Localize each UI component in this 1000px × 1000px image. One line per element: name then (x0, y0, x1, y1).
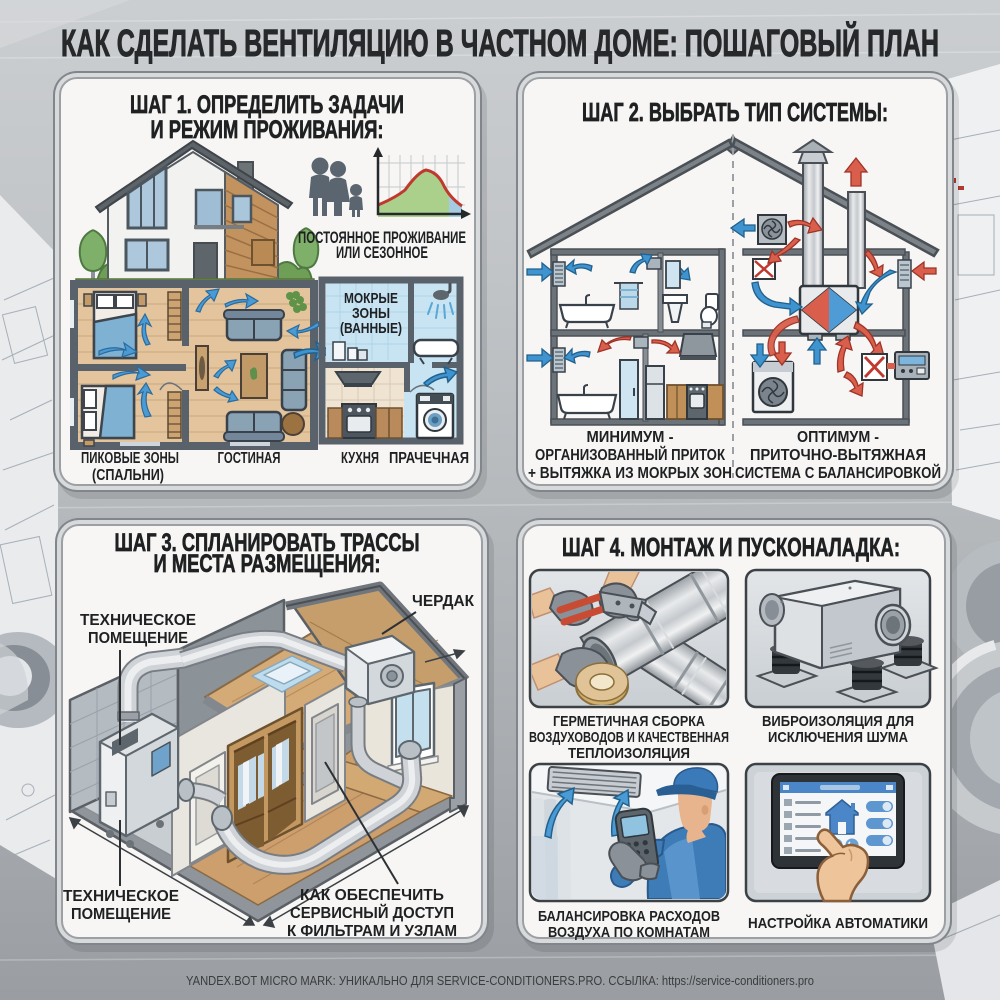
svg-text:И МЕСТА РАЗМЕЩЕНИЯ:: И МЕСТА РАЗМЕЩЕНИЯ: (154, 550, 381, 578)
svg-text:КУХНЯ: КУХНЯ (341, 450, 379, 467)
svg-text:ЧЕРДАК: ЧЕРДАК (412, 593, 474, 610)
svg-text:К ФИЛЬТРАМ И УЗЛАМ: К ФИЛЬТРАМ И УЗЛАМ (287, 923, 457, 940)
svg-text:ИСКЛЮЧЕНИЯ ШУМА: ИСКЛЮЧЕНИЯ ШУМА (768, 729, 908, 746)
svg-text:ШАГ 1. ОПРЕДЕЛИТЬ ЗАДАЧИ: ШАГ 1. ОПРЕДЕЛИТЬ ЗАДАЧИ (130, 91, 404, 119)
svg-text:ВОЗДУХА ПО КОМНАТАМ: ВОЗДУХА ПО КОМНАТАМ (548, 924, 710, 941)
svg-text:ИЛИ СЕЗОННОЕ: ИЛИ СЕЗОННОЕ (336, 243, 428, 262)
svg-text:ШАГ 4. МОНТАЖ И ПУСКОНАЛАДКА:: ШАГ 4. МОНТАЖ И ПУСКОНАЛАДКА: (562, 532, 900, 562)
svg-text:ПРАЧЕЧНАЯ: ПРАЧЕЧНАЯ (389, 450, 469, 467)
svg-text:ПОМЕЩЕНИЕ: ПОМЕЩЕНИЕ (71, 906, 171, 923)
svg-text:ВИБРОИЗОЛЯЦИЯ ДЛЯ: ВИБРОИЗОЛЯЦИЯ ДЛЯ (762, 713, 914, 730)
svg-text:(ВАННЫЕ): (ВАННЫЕ) (340, 320, 402, 337)
svg-text:ТЕПЛОИЗОЛЯЦИЯ: ТЕПЛОИЗОЛЯЦИЯ (568, 745, 690, 762)
svg-text:ТЕХНИЧЕСКОЕ: ТЕХНИЧЕСКОЕ (63, 888, 179, 905)
svg-text:ТЕХНИЧЕСКОЕ: ТЕХНИЧЕСКОЕ (80, 612, 196, 629)
svg-text:ОПТИМУМ -: ОПТИМУМ - (797, 429, 879, 446)
svg-text:КАК ОБЕСПЕЧИТЬ: КАК ОБЕСПЕЧИТЬ (300, 887, 444, 904)
svg-text:ГЕРМЕТИЧНАЯ СБОРКА: ГЕРМЕТИЧНАЯ СБОРКА (553, 713, 705, 730)
svg-text:СЕРВИСНЫЙ ДОСТУП: СЕРВИСНЫЙ ДОСТУП (290, 903, 454, 922)
svg-text:БАЛАНСИРОВКА РАСХОДОВ: БАЛАНСИРОВКА РАСХОДОВ (538, 908, 720, 925)
svg-text:ПИКОВЫЕ ЗОНЫ: ПИКОВЫЕ ЗОНЫ (81, 450, 179, 467)
svg-text:СИСТЕМА С БАЛАНСИРОВКОЙ: СИСТЕМА С БАЛАНСИРОВКОЙ (735, 463, 941, 482)
svg-text:ВОЗДУХОВОДОВ И КАЧЕСТВЕННАЯ: ВОЗДУХОВОДОВ И КАЧЕСТВЕННАЯ (529, 729, 729, 746)
svg-text:ШАГ 2. ВЫБРАТЬ ТИП СИСТЕМЫ:: ШАГ 2. ВЫБРАТЬ ТИП СИСТЕМЫ: (582, 97, 888, 127)
svg-text:YANDEX.BOT MICRO MARK: УНИКАЛЬ: YANDEX.BOT MICRO MARK: УНИКАЛЬНО ДЛЯ SER… (186, 973, 814, 988)
svg-text:ПРИТОЧНО-ВЫТЯЖНАЯ: ПРИТОЧНО-ВЫТЯЖНАЯ (750, 447, 926, 464)
svg-text:ГОСТИНАЯ: ГОСТИНАЯ (218, 450, 281, 467)
svg-text:МИНИМУМ -: МИНИМУМ - (587, 429, 674, 446)
svg-text:КАК СДЕЛАТЬ ВЕНТИЛЯЦИЮ В ЧАСТН: КАК СДЕЛАТЬ ВЕНТИЛЯЦИЮ В ЧАСТНОМ ДОМЕ: П… (61, 20, 939, 65)
svg-text:ПОМЕЩЕНИЕ: ПОМЕЩЕНИЕ (88, 630, 188, 647)
svg-text:(СПАЛЬНИ): (СПАЛЬНИ) (92, 467, 164, 484)
svg-text:+ ВЫТЯЖКА ИЗ МОКРЫХ ЗОН: + ВЫТЯЖКА ИЗ МОКРЫХ ЗОН (528, 465, 732, 482)
svg-text:ОРГАНИЗОВАННЫЙ ПРИТОК: ОРГАНИЗОВАННЫЙ ПРИТОК (535, 445, 725, 464)
svg-text:И РЕЖИМ ПРОЖИВАНИЯ:: И РЕЖИМ ПРОЖИВАНИЯ: (151, 116, 384, 144)
svg-text:НАСТРОЙКА АВТОМАТИКИ: НАСТРОЙКА АВТОМАТИКИ (748, 914, 928, 932)
